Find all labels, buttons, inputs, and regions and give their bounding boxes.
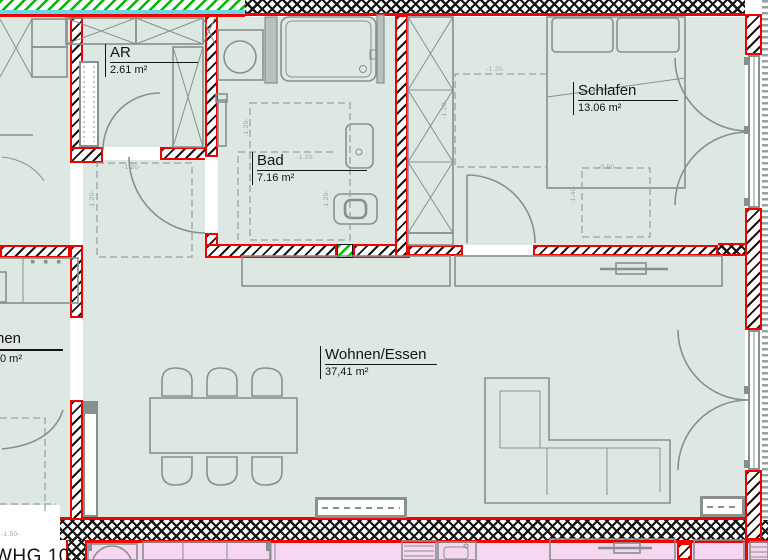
dim-label: -1.20-: [486, 66, 505, 73]
wall-left-mid: [70, 245, 83, 318]
wall-left-lower: [70, 400, 83, 520]
door-opening-bad: [205, 157, 218, 233]
door-opening-schlafen: [463, 245, 533, 256]
dim-label: -1.20-: [122, 164, 141, 171]
room-label-neighbor: nen: [0, 330, 21, 347]
wall-bad-left-upper: [205, 15, 218, 157]
room-label-wohnen: Wohnen/Essen 37,41 m²: [320, 346, 437, 379]
window-handle-3: [744, 198, 750, 206]
window-glass-line: [707, 506, 738, 508]
apartment-number: WHG 10: [0, 546, 70, 560]
exterior-wall-top: [245, 0, 745, 13]
room-area: 2.61 m²: [110, 63, 198, 77]
dim-label: -1.50-: [1, 531, 20, 538]
dim-label: -1.40-: [570, 185, 577, 204]
room-name: Wohnen/Essen: [325, 346, 437, 365]
room-name: AR: [110, 44, 198, 63]
room-name: Schlafen: [578, 82, 678, 101]
window-handle-1: [744, 57, 750, 65]
wall-ar-bottom-left: [70, 147, 103, 163]
room-label-schlafen: Schlafen 13.06 m²: [573, 82, 678, 115]
dim-label: -1.20-: [89, 190, 96, 209]
wall-schlafen-bottom-right: [533, 245, 718, 256]
window-handle-2: [744, 126, 750, 134]
pier-right-low: [745, 470, 762, 540]
exterior-wall-bottom: [60, 520, 768, 540]
window-bottom-mid: [315, 497, 407, 518]
window-handle-4: [744, 386, 750, 394]
room-label-ar: AR 2.61 m²: [105, 44, 198, 77]
wall-edge-top: [245, 13, 745, 16]
dim-label: -1.20-: [323, 190, 330, 209]
wall-schlafen-bottom-left: [408, 245, 463, 256]
wall-neighbor-band: [0, 245, 70, 258]
room-area: 37,41 m²: [325, 365, 437, 379]
wall-bad-bottom-left: [205, 244, 337, 258]
dim-label: -1.20-: [243, 118, 250, 137]
label-underline: [0, 349, 63, 351]
room-name: Bad: [257, 152, 367, 171]
wall-bad-right: [395, 15, 408, 258]
floorplan: -1.20- -1.20- -1.20- -1.20- -1.20- -1.20…: [0, 0, 768, 560]
vent-shaft: [337, 244, 353, 258]
window-handle-5: [744, 460, 750, 468]
opening-neighbor-low: [70, 318, 83, 400]
wall-schlafen-bottom-end: [718, 243, 745, 256]
facade-edge: [762, 0, 768, 520]
wall-edge-br: [745, 540, 748, 560]
wall-ar-left: [70, 17, 83, 163]
window-glass-line: [322, 507, 400, 509]
dim-label: -0.90-: [598, 164, 617, 171]
room-area: 7.16 m²: [257, 171, 367, 185]
room-label-bad: Bad 7.16 m²: [252, 152, 367, 185]
insulation-strip: [0, 0, 245, 10]
pier-bottom-room: [677, 543, 692, 560]
pier-right-mid: [745, 208, 762, 330]
opening-hall-neighbor: [70, 163, 83, 245]
window-wohnen: [748, 330, 760, 470]
pier-right-top: [745, 14, 762, 55]
dim-label: -1.20-: [441, 100, 448, 119]
door-opening-ar: [103, 147, 160, 160]
room-area-neighbor: 0 m²: [0, 353, 22, 365]
floor-lower-flat: [87, 543, 768, 560]
room-area: 13.06 m²: [578, 101, 678, 115]
window-bottom-right: [700, 496, 745, 517]
